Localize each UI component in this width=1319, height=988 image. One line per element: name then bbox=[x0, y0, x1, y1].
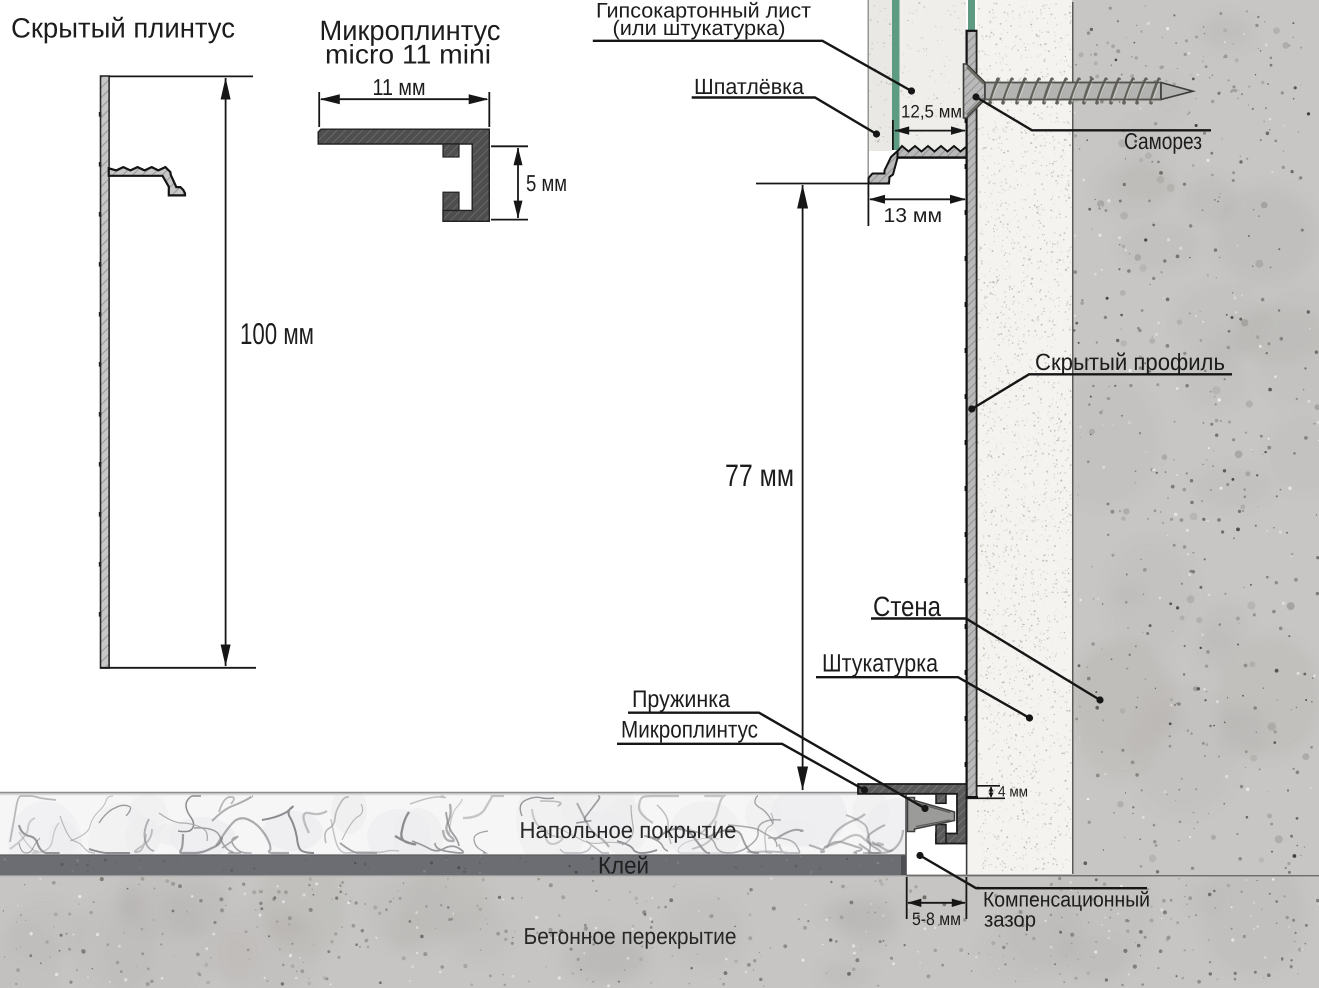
svg-text:Микроплинтус: Микроплинтус bbox=[621, 717, 758, 744]
svg-text:Саморез: Саморез bbox=[1124, 128, 1202, 154]
svg-text:micro 11 mini: micro 11 mini bbox=[325, 40, 491, 70]
svg-text:Штукатурка: Штукатурка bbox=[822, 650, 938, 678]
svg-text:12,5 мм: 12,5 мм bbox=[901, 102, 962, 122]
svg-text:(или штукатурка): (или штукатурка) bbox=[613, 17, 786, 40]
svg-text:5 мм: 5 мм bbox=[526, 170, 567, 196]
svg-text:Скрытый плинтус: Скрытый плинтус bbox=[11, 13, 235, 44]
svg-text:зазор: зазор bbox=[984, 909, 1036, 932]
svg-text:77 мм: 77 мм bbox=[725, 458, 794, 493]
svg-text:4 мм: 4 мм bbox=[998, 784, 1028, 801]
svg-text:5-8 мм: 5-8 мм bbox=[912, 909, 961, 929]
svg-text:Скрытый профиль: Скрытый профиль bbox=[1035, 349, 1225, 375]
svg-text:Напольное покрытие: Напольное покрытие bbox=[520, 817, 737, 843]
svg-text:Шпатлёвка: Шпатлёвка bbox=[694, 74, 805, 99]
svg-text:Пружинка: Пружинка bbox=[632, 686, 731, 713]
svg-text:Бетонное перекрытие: Бетонное перекрытие bbox=[524, 923, 737, 949]
svg-text:100 мм: 100 мм bbox=[240, 318, 314, 351]
svg-text:13 мм: 13 мм bbox=[884, 205, 943, 227]
svg-text:Клей: Клей bbox=[598, 853, 649, 880]
svg-text:11 мм: 11 мм bbox=[373, 74, 426, 100]
